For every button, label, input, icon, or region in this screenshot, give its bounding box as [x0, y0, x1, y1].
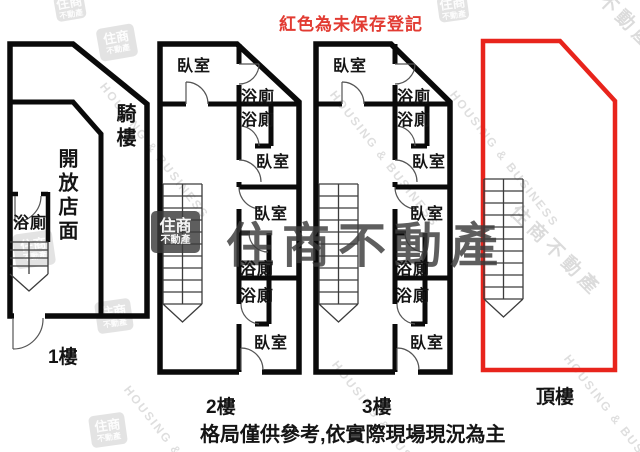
- room-label-open-storefront: 開放店面: [52, 148, 81, 244]
- room-label-bathroom: 浴廁: [241, 106, 275, 130]
- disclaimer-text: 格局僅供參考,依實際現場現況為主: [200, 418, 506, 447]
- brand-logo-stamp-dark: 住商 不動產: [151, 211, 200, 253]
- floor3-caption: 3樓: [362, 392, 392, 419]
- room-label-bathroom: 浴廁: [396, 255, 430, 279]
- unregistered-note: 紅色為未保存登記: [279, 10, 423, 35]
- room-label-bedroom: 臥室: [410, 329, 444, 353]
- room-label-bedroom: 臥室: [410, 200, 444, 224]
- floor2-caption: 2樓: [206, 392, 236, 419]
- floorplan-canvas: HOUSING & BUSINESS HOUSING & BUSINESS HO…: [0, 0, 640, 452]
- room-label-arcade: 騎樓: [110, 103, 139, 151]
- floor2-stairs: [163, 184, 202, 322]
- roof-caption: 頂樓: [536, 382, 574, 409]
- room-label-bathroom: 浴廁: [13, 209, 47, 233]
- room-label-bathroom: 浴廁: [240, 282, 274, 306]
- room-label-bathroom: 浴廁: [396, 282, 430, 306]
- room-label-bathroom: 浴廁: [240, 255, 274, 279]
- room-label-bedroom: 臥室: [254, 329, 288, 353]
- room-label-bathroom: 浴廁: [241, 83, 275, 107]
- room-label-bedroom: 臥室: [254, 200, 288, 224]
- room-label-bedroom: 臥室: [256, 148, 290, 172]
- room-label-bathroom: 浴廁: [397, 106, 431, 130]
- floor1-caption: 1樓: [48, 342, 78, 369]
- room-label-bedroom: 臥室: [412, 148, 446, 172]
- floor1-stairs: [10, 242, 48, 291]
- room-label-bedroom: 臥室: [177, 52, 211, 76]
- room-label-bathroom: 浴廁: [397, 83, 431, 107]
- room-label-bedroom: 臥室: [333, 52, 367, 76]
